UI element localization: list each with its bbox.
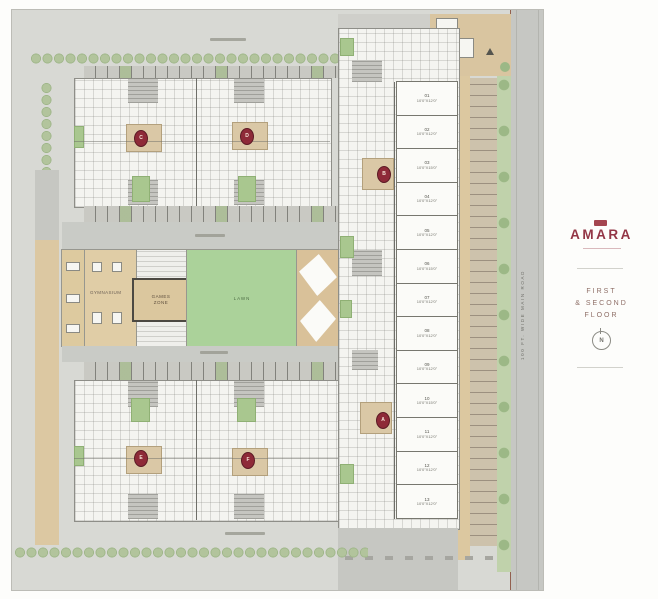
- floor-title-line: FIRST: [553, 286, 650, 298]
- tree-row: [30, 52, 352, 65]
- core-letter: F: [246, 458, 249, 463]
- road-label: 100 FT. WIDE MAIN ROAD: [520, 225, 525, 360]
- core-letter: B: [382, 172, 386, 177]
- parking-row: [84, 66, 346, 78]
- dimension-smudge: [225, 532, 265, 535]
- divider: [577, 367, 623, 368]
- stair-shaft: [234, 494, 264, 519]
- wall-line: [196, 78, 197, 206]
- shop-unit: 03 10'0"X15'0": [396, 148, 458, 183]
- shade-sail-icon: [299, 254, 337, 296]
- floor-title: FIRST & SECOND FLOOR: [553, 286, 650, 322]
- lawn: LAWN: [186, 250, 297, 346]
- shop-unit: 12 10'0"X12'0": [396, 451, 458, 486]
- bench: [66, 262, 80, 271]
- shade-sail-icon: [300, 300, 336, 342]
- shop-unit: 08 10'0"X12'0": [396, 316, 458, 351]
- tree-icon: [500, 62, 510, 72]
- floor-title-line: & SECOND: [553, 298, 650, 310]
- shop-size: 10'0"X12'0": [417, 99, 437, 104]
- shop-size: 10'0"X15'0": [417, 401, 437, 406]
- compass-north-letter: N: [599, 338, 603, 344]
- core-letter: C: [139, 136, 143, 141]
- planter: [74, 446, 84, 466]
- tree-row: [497, 30, 511, 570]
- shops-column: 01 10'0"X12'0" 02 10'0"X12'0" 03 10'0"X1…: [396, 82, 458, 519]
- compass-needle: [600, 328, 601, 334]
- core-letter: D: [245, 134, 249, 139]
- stair-shaft: [352, 250, 382, 276]
- gym-equipment: [92, 312, 102, 324]
- planter: [340, 464, 354, 484]
- wall-line: [196, 380, 197, 520]
- building-south: [74, 380, 380, 522]
- games-zone-label: GAMES: [152, 295, 171, 300]
- planter: [238, 176, 256, 202]
- block-core-marker: C: [134, 130, 148, 147]
- planter: [237, 398, 256, 422]
- gym-equipment: [112, 312, 122, 324]
- title-sidebar: AMARA FIRST & SECOND FLOOR N: [545, 0, 658, 599]
- side-drive: [35, 170, 59, 240]
- block-core-marker: B: [377, 166, 391, 183]
- planter: [132, 176, 150, 202]
- wall-line: [394, 82, 395, 519]
- parking-column: [470, 78, 497, 546]
- stair-shaft: [352, 350, 378, 370]
- shade-sail-deck: [296, 250, 339, 346]
- entry-drive: [338, 14, 430, 28]
- shop-unit: 01 10'0"X12'0": [396, 81, 458, 116]
- shop-size: 10'0"X12'0": [417, 468, 437, 473]
- north-compass-icon: N: [592, 331, 611, 350]
- block-core-marker: D: [240, 128, 254, 145]
- brand-tagline-rule: [583, 248, 621, 249]
- shop-size: 10'0"X12'0": [417, 334, 437, 339]
- gymnasium-label: GYMNASIUM: [90, 290, 121, 295]
- dimension-smudge: [210, 38, 246, 41]
- shop-size: 10'0"X12'0": [417, 199, 437, 204]
- road-lane-line: [538, 10, 539, 590]
- games-zone-label: ZONE: [154, 301, 169, 306]
- shop-unit: 13 10'0"X12'0": [396, 484, 458, 519]
- shop-size: 10'0"X12'0": [417, 367, 437, 372]
- divider: [577, 268, 623, 269]
- brand-mark-icon: [594, 220, 607, 226]
- wall-line: [74, 141, 330, 142]
- bench: [66, 324, 80, 333]
- shop-size: 10'0"X15'0": [417, 166, 437, 171]
- stair-shaft: [128, 494, 158, 519]
- shop-unit: 02 10'0"X12'0": [396, 115, 458, 150]
- shop-size: 10'0"X12'0": [417, 233, 437, 238]
- planter: [340, 38, 354, 56]
- floor-plan-page: 100 FT. WIDE MAIN ROAD C D GYMNASIUM: [0, 0, 658, 599]
- shop-unit: 11 10'0"X12'0": [396, 417, 458, 452]
- road-lane-line: [516, 10, 517, 590]
- shop-size: 10'0"X15'0": [417, 267, 437, 272]
- planter: [131, 398, 150, 422]
- block-core-marker: E: [134, 450, 148, 467]
- block-core-marker: A: [376, 412, 390, 429]
- dimension-smudge: [195, 234, 225, 237]
- core-letter: E: [139, 456, 142, 461]
- parking-row: [84, 206, 346, 222]
- shop-size: 10'0"X12'0": [417, 435, 437, 440]
- planter: [74, 126, 84, 148]
- gym-equipment: [92, 262, 102, 272]
- shop-size: 10'0"X12'0": [417, 132, 437, 137]
- block-core-marker: F: [241, 452, 255, 469]
- planter: [340, 300, 352, 318]
- core-letter: A: [381, 418, 385, 423]
- brand-logo: AMARA: [545, 227, 658, 242]
- dimension-smudge: [200, 351, 228, 354]
- shop-unit: 05 10'0"X12'0": [396, 215, 458, 250]
- wall-line: [74, 458, 378, 459]
- gym-equipment: [112, 262, 122, 272]
- side-paving: [35, 240, 59, 545]
- bench: [66, 294, 80, 303]
- shop-unit: 06 10'0"X15'0": [396, 249, 458, 284]
- shop-unit: 04 10'0"X12'0": [396, 182, 458, 217]
- shop-unit: 09 10'0"X12'0": [396, 350, 458, 385]
- stair-shaft: [234, 79, 264, 103]
- internal-road: [62, 346, 346, 362]
- lawn-label: LAWN: [234, 296, 251, 301]
- stair-shaft: [128, 79, 158, 103]
- games-zone: GAMES ZONE: [132, 278, 190, 322]
- tree-row: [14, 546, 368, 559]
- floor-title-line: FLOOR: [553, 310, 650, 322]
- shop-unit: 07 10'0"X12'0": [396, 283, 458, 318]
- entry-arrow-icon: [486, 48, 494, 55]
- shop-unit: 10 10'0"X15'0": [396, 383, 458, 418]
- parking-row: [84, 362, 360, 380]
- shop-size: 10'0"X12'0": [417, 300, 437, 305]
- planter: [340, 236, 354, 258]
- stair-shaft: [352, 60, 382, 82]
- building-north: [74, 78, 332, 208]
- shop-size: 10'0"X12'0": [417, 502, 437, 507]
